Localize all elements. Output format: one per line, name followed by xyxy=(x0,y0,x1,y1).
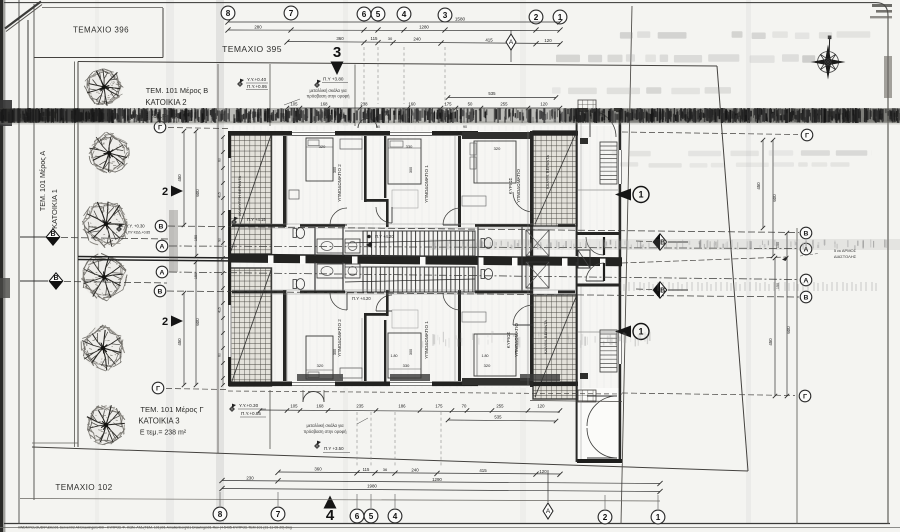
svg-text:ΚΥΡΙΩΣ: ΚΥΡΙΩΣ xyxy=(508,177,513,194)
svg-text:ΚΥΡΙΩΣ: ΚΥΡΙΩΣ xyxy=(506,331,511,348)
svg-text:8: 8 xyxy=(218,510,223,519)
svg-text:ΥΠΝΟΔΩΜΑΤΙΟ 2: ΥΠΝΟΔΩΜΑΤΙΟ 2 xyxy=(337,319,342,357)
svg-text:255: 255 xyxy=(500,102,508,107)
svg-text:115: 115 xyxy=(363,467,370,472)
svg-text:1.80: 1.80 xyxy=(391,354,398,358)
svg-text:90: 90 xyxy=(463,125,467,129)
svg-text:ΚΑΤΟΙΚΙΑ 2: ΚΑΤΟΙΚΙΑ 2 xyxy=(145,98,186,107)
svg-text:ΚΑΤΟΙΚΙΑ 1: ΚΑΤΟΙΚΙΑ 1 xyxy=(50,189,59,229)
svg-text:360: 360 xyxy=(314,467,322,472)
svg-text:7: 7 xyxy=(276,510,281,519)
svg-text:36: 36 xyxy=(383,467,388,472)
svg-text:Γ: Γ xyxy=(803,393,807,400)
svg-text:600: 600 xyxy=(786,326,791,334)
svg-text:μεταλλική σκάλα για: μεταλλική σκάλα για xyxy=(309,88,347,93)
svg-text:450: 450 xyxy=(768,338,773,346)
svg-text:50: 50 xyxy=(468,102,473,107)
svg-text:Π.Υ +3.50: Π.Υ +3.50 xyxy=(324,446,344,451)
svg-text:Υ.Υ.+0.30: Υ.Υ.+0.30 xyxy=(239,403,259,408)
svg-text:320: 320 xyxy=(317,363,324,368)
svg-text:1280: 1280 xyxy=(419,25,429,30)
svg-text:ΚΑΛΥΜ. ΒΕΡΑΝΤΑ: ΚΑΛΥΜ. ΒΕΡΑΝΤΑ xyxy=(543,320,548,354)
svg-text:Π.Υ +4.20: Π.Υ +4.20 xyxy=(352,296,371,301)
svg-text:168: 168 xyxy=(320,102,328,107)
svg-text:30: 30 xyxy=(388,36,393,41)
svg-text:6: 6 xyxy=(355,512,360,521)
svg-text:115: 115 xyxy=(371,36,379,41)
svg-text:235: 235 xyxy=(356,404,364,409)
svg-text:8: 8 xyxy=(226,9,231,18)
svg-text:Π.Υ +4.20: Π.Υ +4.20 xyxy=(375,234,394,239)
svg-text:600: 600 xyxy=(772,194,777,202)
svg-text:535: 535 xyxy=(494,415,502,420)
svg-text:1980: 1980 xyxy=(367,484,377,489)
svg-text:330: 330 xyxy=(403,363,410,368)
svg-text:B: B xyxy=(53,275,58,282)
svg-text:4: 4 xyxy=(326,507,335,524)
svg-text:300: 300 xyxy=(333,167,337,173)
svg-text:ΠΥ ΚΩΔ.+0.85: ΠΥ ΚΩΔ.+0.85 xyxy=(128,231,150,235)
svg-text:230: 230 xyxy=(246,476,254,481)
svg-text:ΚΑΛΥΜ. ΒΕΡΑΝΤΑ: ΚΑΛΥΜ. ΒΕΡΑΝΤΑ xyxy=(545,155,550,189)
svg-text:ΤΕΜΑΧΙΟ 102: ΤΕΜΑΧΙΟ 102 xyxy=(55,483,112,492)
svg-text:Γ: Γ xyxy=(158,124,162,131)
svg-text:ΥΠΝΟΔΩΜΑΤΙΟ: ΥΠΝΟΔΩΜΑΤΙΟ xyxy=(516,169,521,203)
svg-text:450: 450 xyxy=(177,174,182,182)
svg-text:600: 600 xyxy=(195,318,200,326)
svg-text:2: 2 xyxy=(603,513,608,522)
svg-text:1580: 1580 xyxy=(455,17,466,22)
svg-text:μεταλλική σκάλα για: μεταλλική σκάλα για xyxy=(306,423,344,428)
svg-text:300: 300 xyxy=(409,167,413,173)
svg-text:1.80: 1.80 xyxy=(482,354,489,358)
svg-text:5: 5 xyxy=(376,10,381,19)
svg-text:ΤΕΜ. 101 Μέρος Β: ΤΕΜ. 101 Μέρος Β xyxy=(146,86,208,95)
svg-text:150: 150 xyxy=(194,235,198,241)
svg-text:105: 105 xyxy=(290,102,298,107)
svg-text:ΤΕΜΑΧΙΟ 395: ΤΕΜΑΧΙΟ 395 xyxy=(222,44,282,54)
svg-text:60: 60 xyxy=(218,353,222,357)
svg-text:450: 450 xyxy=(756,182,761,190)
svg-text:160: 160 xyxy=(408,102,416,107)
svg-text:ΔΙΑΣΤΟΛΗΣ: ΔΙΑΣΤΟΛΗΣ xyxy=(834,254,857,259)
svg-text:Β: Β xyxy=(804,294,809,301)
svg-text:4: 4 xyxy=(393,512,398,521)
svg-text:ΚΑΤΟΙΚΙΑ 3: ΚΑΤΟΙΚΙΑ 3 xyxy=(138,417,179,426)
svg-text:255: 255 xyxy=(496,404,504,409)
svg-text:280: 280 xyxy=(254,25,262,30)
svg-text:186: 186 xyxy=(398,404,406,409)
svg-text:415: 415 xyxy=(218,192,222,198)
svg-text:ΥΠΝΟΔΩΜΑΤΙΟ 1: ΥΠΝΟΔΩΜΑΤΙΟ 1 xyxy=(424,321,429,359)
svg-text:175: 175 xyxy=(444,102,452,107)
svg-text:Α: Α xyxy=(160,269,165,276)
svg-text:Γ: Γ xyxy=(156,385,160,392)
svg-text:7: 7 xyxy=(289,9,294,18)
svg-text:A: A xyxy=(546,508,551,515)
svg-text:450: 450 xyxy=(177,338,182,346)
svg-text:1: 1 xyxy=(638,190,643,200)
svg-text:2: 2 xyxy=(162,316,168,328)
svg-text:1290: 1290 xyxy=(432,477,442,482)
svg-text:A: A xyxy=(509,39,514,46)
svg-text:4: 4 xyxy=(402,10,407,19)
svg-text:ΥΠΝΟΔΩΜΑΤΙΟ 2: ΥΠΝΟΔΩΜΑΤΙΟ 2 xyxy=(337,164,342,202)
svg-text:168: 168 xyxy=(316,404,324,409)
svg-text:60: 60 xyxy=(218,158,222,162)
svg-text:120: 120 xyxy=(540,102,548,107)
svg-text:Α: Α xyxy=(160,243,165,250)
svg-text:120: 120 xyxy=(539,469,547,474)
svg-text:3: 3 xyxy=(443,11,448,20)
svg-text:360: 360 xyxy=(336,36,344,41)
svg-text:\\WDMYCLOUD\Public\01 Server\0: \\WDMYCLOUD\Public\01 Server\02 All Draw… xyxy=(18,526,292,530)
svg-text:2: 2 xyxy=(534,13,539,22)
svg-text:320: 320 xyxy=(494,146,501,151)
svg-text:πρόσβαση στην οροφή: πρόσβαση στην οροφή xyxy=(304,429,348,434)
svg-text:5: 5 xyxy=(369,512,374,521)
svg-text:240: 240 xyxy=(411,468,419,473)
svg-text:415: 415 xyxy=(479,468,487,473)
svg-text:Π.Υ +4.15: Π.Υ +4.15 xyxy=(247,217,266,222)
svg-text:105: 105 xyxy=(290,404,298,409)
svg-text:3: 3 xyxy=(333,44,341,61)
svg-text:240: 240 xyxy=(413,36,421,41)
svg-text:1: 1 xyxy=(656,513,661,522)
svg-text:6: 6 xyxy=(362,10,367,19)
svg-text:πρόσβαση στην οροφή: πρόσβαση στην οροφή xyxy=(307,94,351,99)
svg-text:2: 2 xyxy=(162,186,168,198)
svg-text:ΥΠΝΟΔΩΜΑΤΙΟ 1: ΥΠΝΟΔΩΜΑΤΙΟ 1 xyxy=(424,165,429,203)
svg-text:320: 320 xyxy=(484,363,491,368)
svg-text:300: 300 xyxy=(333,349,337,355)
svg-text:90: 90 xyxy=(218,238,222,242)
svg-text:ΑΚΑΛΥΠΤΗ ΒΕΡΑΝΤΑ: ΑΚΑΛΥΠΤΗ ΒΕΡΑΝΤΑ xyxy=(237,175,242,216)
svg-text:300: 300 xyxy=(409,349,413,355)
svg-text:ΤΕΜ. 101 Μέρος Γ: ΤΕΜ. 101 Μέρος Γ xyxy=(140,405,203,414)
svg-text:B: B xyxy=(50,231,55,238)
svg-text:Π.Υ +3.80: Π.Υ +3.80 xyxy=(323,77,344,82)
svg-text:Υ.Υ.+0.40: Υ.Υ.+0.40 xyxy=(247,77,267,82)
svg-text:70: 70 xyxy=(462,404,467,409)
svg-text:330: 330 xyxy=(406,144,413,149)
svg-text:535: 535 xyxy=(488,91,496,96)
svg-text:600: 600 xyxy=(195,189,200,197)
svg-text:Π.Υ.+0.95: Π.Υ.+0.95 xyxy=(247,84,267,89)
svg-text:Γ: Γ xyxy=(805,132,809,139)
svg-text:Υ.Υ. +0.30: Υ.Υ. +0.30 xyxy=(126,224,145,229)
svg-text:Β: Β xyxy=(804,230,809,237)
svg-text:175: 175 xyxy=(435,404,443,409)
svg-text:320: 320 xyxy=(319,144,326,149)
svg-text:415: 415 xyxy=(485,37,493,42)
svg-text:ΤΕΜΑΧΙΟ 396: ΤΕΜΑΧΙΟ 396 xyxy=(73,26,129,35)
svg-text:Β: Β xyxy=(158,288,163,295)
svg-text:120: 120 xyxy=(537,404,545,409)
svg-text:ΤΕΜ. 101 Μέρος Α: ΤΕΜ. 101 Μέρος Α xyxy=(38,151,47,211)
svg-text:238: 238 xyxy=(360,102,368,107)
svg-text:415: 415 xyxy=(218,307,222,313)
svg-text:120: 120 xyxy=(544,38,552,43)
svg-text:Β: Β xyxy=(159,223,164,230)
svg-text:Ε τεμ.= 238 m²: Ε τεμ.= 238 m² xyxy=(140,430,187,437)
svg-text:Π.Υ.+0.85: Π.Υ.+0.85 xyxy=(241,411,261,416)
